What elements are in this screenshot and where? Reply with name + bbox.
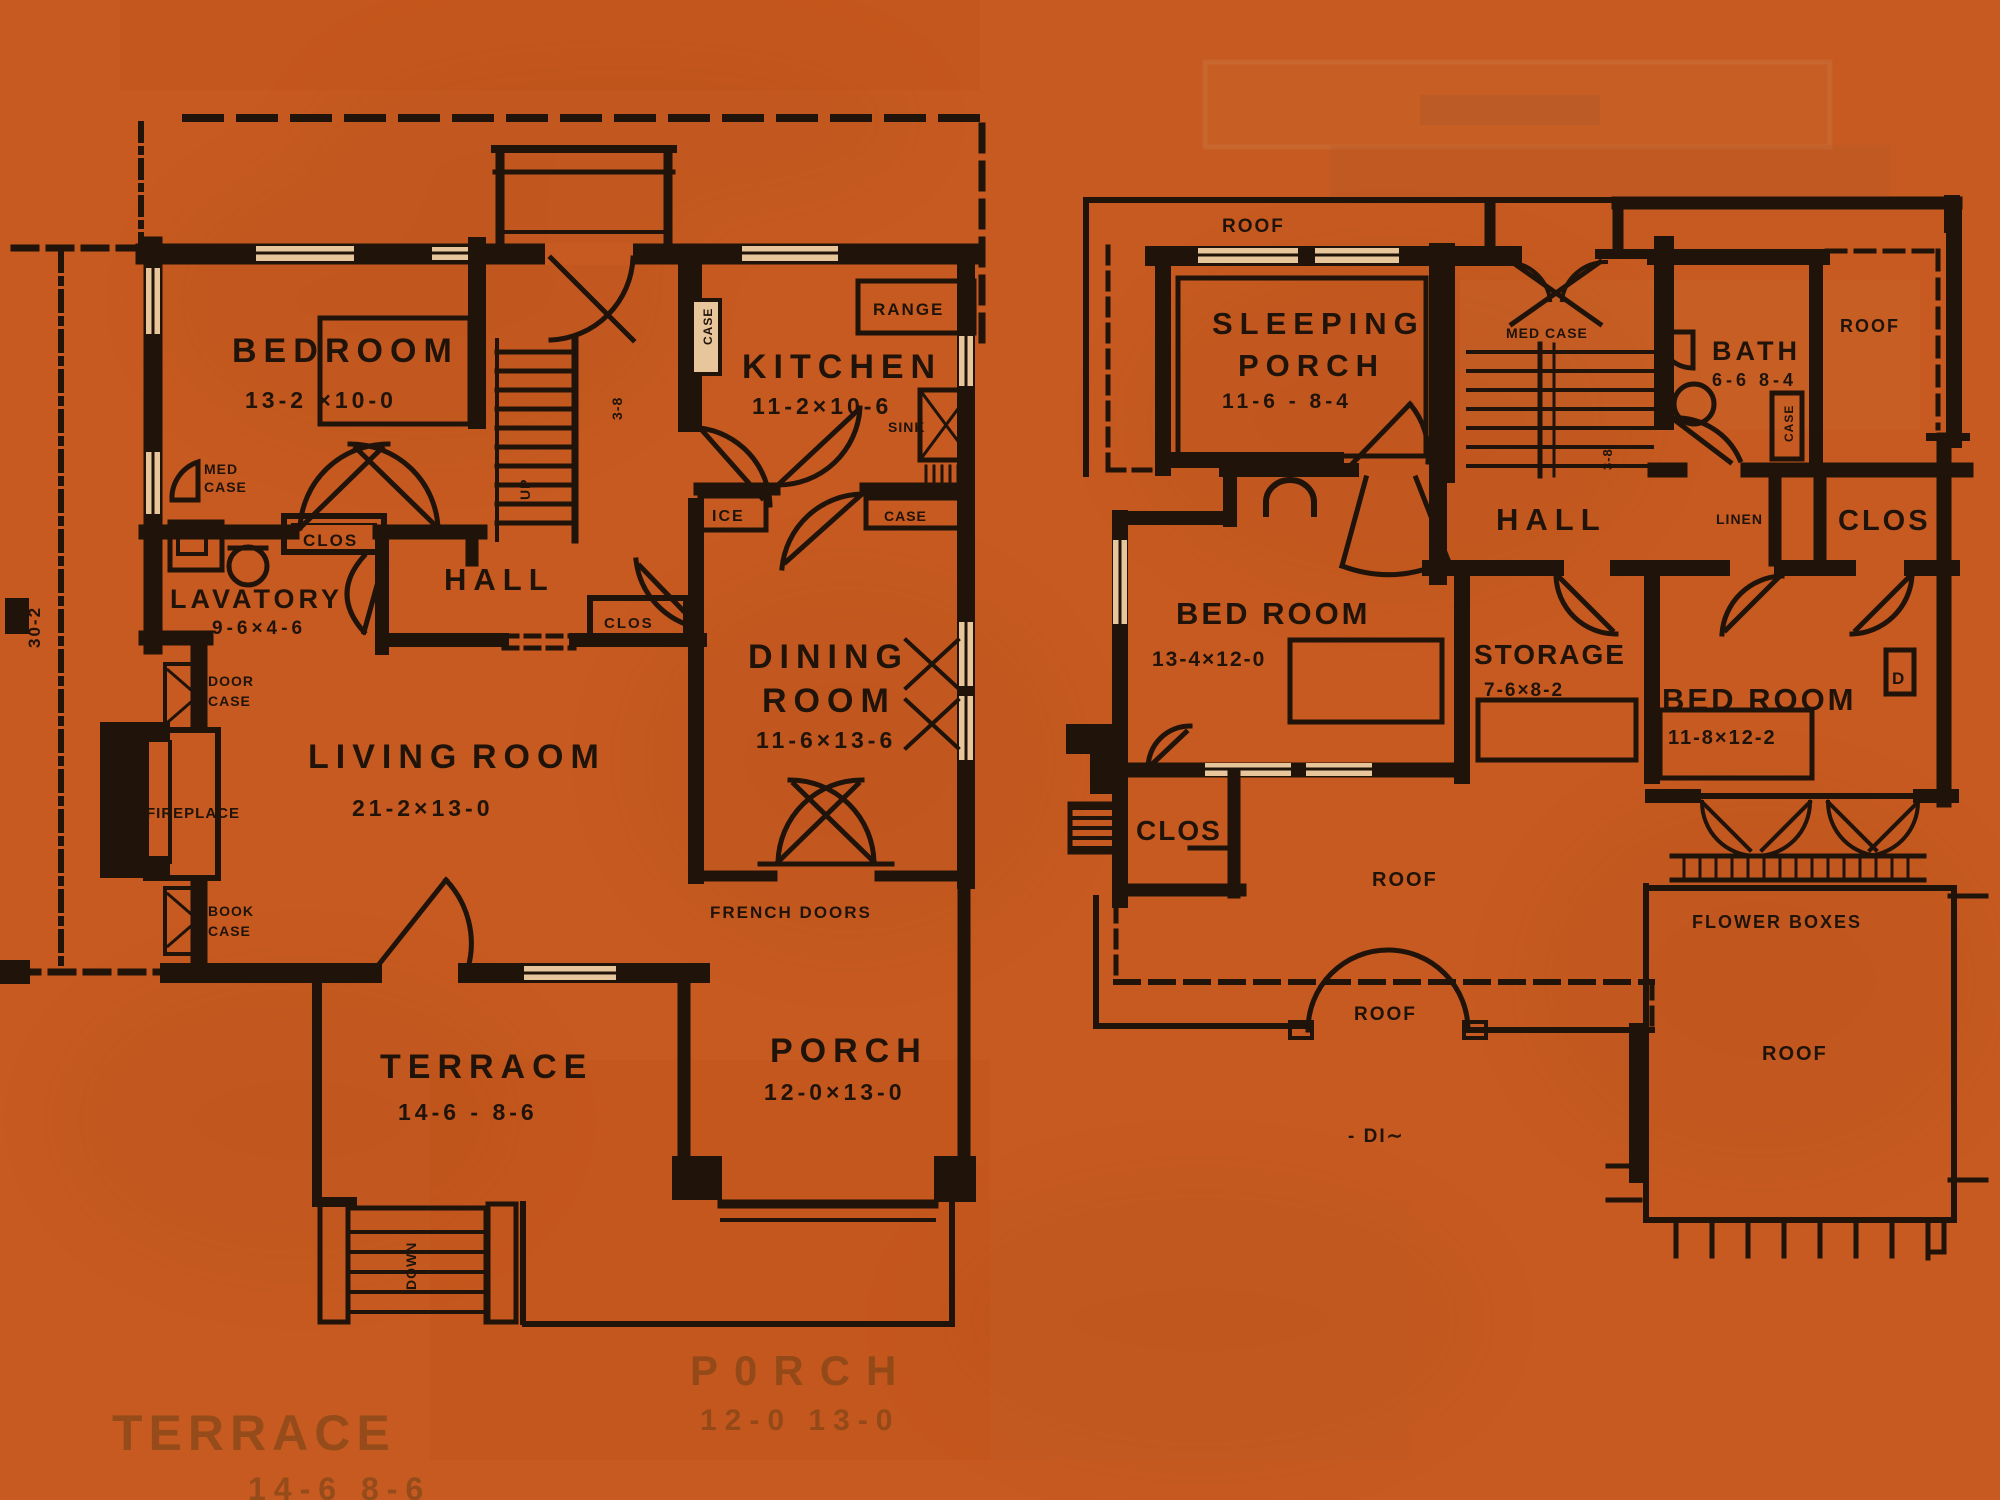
svg-text:MED: MED	[204, 461, 238, 477]
svg-text:PORCH: PORCH	[1238, 348, 1385, 383]
svg-text:TERRACE: TERRACE	[380, 1048, 593, 1086]
svg-text:SLEEPING: SLEEPING	[1212, 306, 1425, 341]
svg-text:FIREPLACE: FIREPLACE	[146, 805, 240, 822]
svg-text:CASE: CASE	[208, 923, 251, 939]
svg-text:ROOF: ROOF	[1222, 216, 1285, 237]
svg-text:13-4×12-0: 13-4×12-0	[1152, 648, 1266, 671]
svg-text:HALL: HALL	[444, 562, 555, 597]
svg-text:PORCH: PORCH	[770, 1032, 928, 1070]
svg-text:ICE: ICE	[712, 508, 745, 525]
svg-text:12-0×13-0: 12-0×13-0	[764, 1079, 906, 1105]
svg-text:ROOM: ROOM	[325, 332, 459, 370]
svg-text:HALL: HALL	[1496, 502, 1607, 537]
svg-text:DOOR: DOOR	[208, 673, 254, 689]
svg-text:BOOK: BOOK	[208, 903, 254, 919]
svg-text:STORAGE: STORAGE	[1474, 639, 1626, 670]
svg-text:ROOF: ROOF	[1762, 1043, 1828, 1065]
svg-text:LAVATORY: LAVATORY	[170, 584, 343, 614]
svg-text:BED ROOM: BED ROOM	[1662, 682, 1857, 717]
svg-text:21-2×13-0: 21-2×13-0	[352, 795, 494, 821]
svg-text:ROOM: ROOM	[762, 682, 896, 720]
svg-text:6-6 8-4: 6-6 8-4	[1712, 370, 1797, 390]
svg-text:DINING: DINING	[748, 638, 909, 676]
svg-text:14-6 8-6: 14-6 8-6	[248, 1471, 431, 1500]
svg-text:TERRACE: TERRACE	[112, 1405, 396, 1461]
svg-text:BATH: BATH	[1712, 336, 1801, 366]
svg-text:ROOF: ROOF	[1354, 1004, 1417, 1025]
svg-text:BED ROOM: BED ROOM	[1176, 596, 1371, 631]
svg-text:CASE: CASE	[701, 308, 715, 345]
svg-text:3-8: 3-8	[609, 397, 625, 420]
svg-text:11-8×12-2: 11-8×12-2	[1668, 727, 1777, 749]
svg-text:D: D	[1892, 669, 1906, 688]
svg-text:3-8: 3-8	[1600, 448, 1615, 470]
svg-text:CLOS: CLOS	[604, 615, 654, 632]
svg-text:- DI∼: - DI∼	[1348, 1126, 1405, 1147]
svg-text:CLOS: CLOS	[303, 531, 358, 550]
svg-text:LINEN: LINEN	[1716, 511, 1763, 527]
svg-text:CASE: CASE	[1782, 405, 1796, 442]
svg-text:11-6×13-6: 11-6×13-6	[756, 727, 896, 753]
svg-text:FRENCH DOORS: FRENCH DOORS	[710, 903, 872, 922]
svg-text:P0RCH: P0RCH	[690, 1347, 912, 1394]
svg-text:11-6 - 8-4: 11-6 - 8-4	[1222, 390, 1352, 413]
svg-text:CASE: CASE	[208, 693, 251, 709]
svg-text:SINK: SINK	[888, 419, 925, 435]
svg-text:FLOWER BOXES: FLOWER BOXES	[1692, 912, 1862, 932]
svg-text:KITCHEN: KITCHEN	[742, 348, 942, 386]
svg-text:BED: BED	[232, 332, 325, 370]
svg-text:RANGE: RANGE	[873, 300, 944, 319]
svg-text:ROOF: ROOF	[1372, 869, 1438, 891]
svg-text:CLOS: CLOS	[1136, 815, 1222, 846]
svg-text:MED CASE: MED CASE	[1506, 325, 1588, 341]
svg-text:12-0 13-0: 12-0 13-0	[700, 1404, 900, 1437]
svg-text:9-6×4-6: 9-6×4-6	[212, 618, 306, 639]
svg-text:CLOS: CLOS	[1838, 505, 1931, 537]
svg-text:11-2×10-6: 11-2×10-6	[752, 393, 892, 419]
svg-text:14-6 - 8-6: 14-6 - 8-6	[398, 1099, 538, 1125]
svg-text:ROOM: ROOM	[472, 738, 606, 776]
svg-text:30-2: 30-2	[25, 606, 44, 648]
svg-text:CASE: CASE	[884, 508, 927, 524]
svg-text:ROOF: ROOF	[1840, 316, 1900, 336]
svg-text:7-6×8-2: 7-6×8-2	[1484, 680, 1564, 701]
svg-text:DOWN: DOWN	[403, 1242, 419, 1290]
svg-text:UP: UP	[517, 479, 533, 500]
svg-text:LIVING: LIVING	[308, 738, 463, 776]
svg-text:CASE: CASE	[204, 479, 247, 495]
